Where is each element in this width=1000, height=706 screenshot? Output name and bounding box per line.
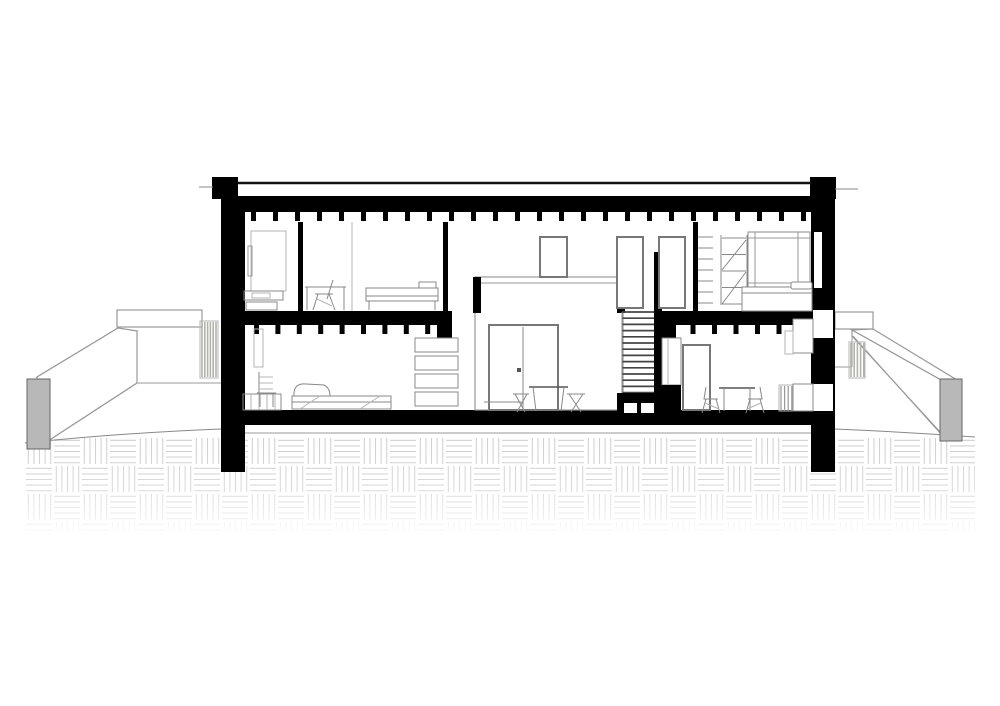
pillow bbox=[419, 282, 436, 288]
roof-joists bbox=[251, 212, 806, 221]
right-retaining-wall bbox=[835, 312, 962, 441]
wall-shelf-boxes bbox=[415, 338, 458, 406]
left-wall-front bbox=[37, 328, 137, 441]
foundation-left bbox=[221, 425, 245, 472]
vanity-basin bbox=[252, 293, 270, 298]
wall-cabinet bbox=[793, 319, 813, 353]
upper-studio bbox=[698, 232, 812, 311]
upper-slab-right bbox=[660, 311, 812, 325]
door-1 bbox=[540, 237, 567, 277]
ground-slab bbox=[221, 410, 835, 425]
bench-cushion bbox=[791, 282, 812, 289]
right-wall-window-cut-lower bbox=[813, 384, 833, 411]
screen-right bbox=[851, 343, 864, 377]
daybed bbox=[292, 384, 391, 409]
radiator-fins bbox=[781, 386, 792, 411]
upper-partition-3 bbox=[693, 222, 698, 311]
right-wall-window-cut-upper bbox=[814, 232, 822, 288]
chair-right bbox=[746, 387, 764, 413]
window-bench bbox=[742, 282, 812, 311]
upper-slab-left bbox=[245, 311, 452, 325]
desk bbox=[305, 287, 346, 310]
upper-bathroom bbox=[244, 231, 286, 310]
pod-edge-left bbox=[473, 277, 481, 313]
parapet-right bbox=[810, 177, 836, 199]
wall-panel bbox=[254, 329, 263, 367]
pod-door bbox=[489, 325, 558, 410]
door-3 bbox=[659, 237, 685, 308]
floor-joists-right bbox=[669, 325, 803, 334]
right-concrete-post bbox=[940, 379, 962, 441]
lower-living-room bbox=[243, 329, 458, 410]
screen-left bbox=[202, 322, 216, 377]
left-retaining-wall bbox=[27, 310, 221, 449]
studio-window bbox=[748, 232, 810, 287]
vanity-counter bbox=[244, 291, 283, 300]
upper-partition-1 bbox=[298, 222, 303, 311]
base-cabinet-dark bbox=[662, 385, 681, 410]
wall-left bbox=[221, 196, 245, 410]
roof-slab bbox=[221, 196, 835, 212]
tall-cabinet bbox=[251, 231, 286, 291]
bookshelf-lines bbox=[698, 237, 713, 303]
desk-chair bbox=[313, 280, 335, 310]
wall-right bbox=[811, 196, 835, 410]
architectural-section-drawing bbox=[0, 0, 1000, 706]
door-2 bbox=[617, 237, 643, 308]
low-cabinet bbox=[793, 384, 813, 411]
upper-bedroom bbox=[305, 222, 438, 311]
left-back-wall bbox=[117, 310, 202, 327]
right-wall-window-cut-mid bbox=[813, 310, 833, 338]
parapet-left bbox=[212, 177, 238, 199]
right-back-wall bbox=[835, 312, 873, 329]
vanity-cabinet bbox=[246, 302, 277, 310]
bed bbox=[366, 282, 438, 310]
door-handle bbox=[517, 368, 521, 372]
slatted-bench bbox=[243, 394, 281, 410]
central-pod bbox=[473, 277, 625, 412]
wall-cabinet-side bbox=[785, 331, 793, 354]
tall-cabinet bbox=[662, 338, 681, 385]
left-concrete-post bbox=[27, 379, 50, 449]
stair-treads bbox=[622, 312, 654, 393]
floor-joists-left bbox=[254, 325, 452, 334]
upper-partition-2 bbox=[443, 222, 448, 311]
foundation-right bbox=[811, 425, 835, 472]
